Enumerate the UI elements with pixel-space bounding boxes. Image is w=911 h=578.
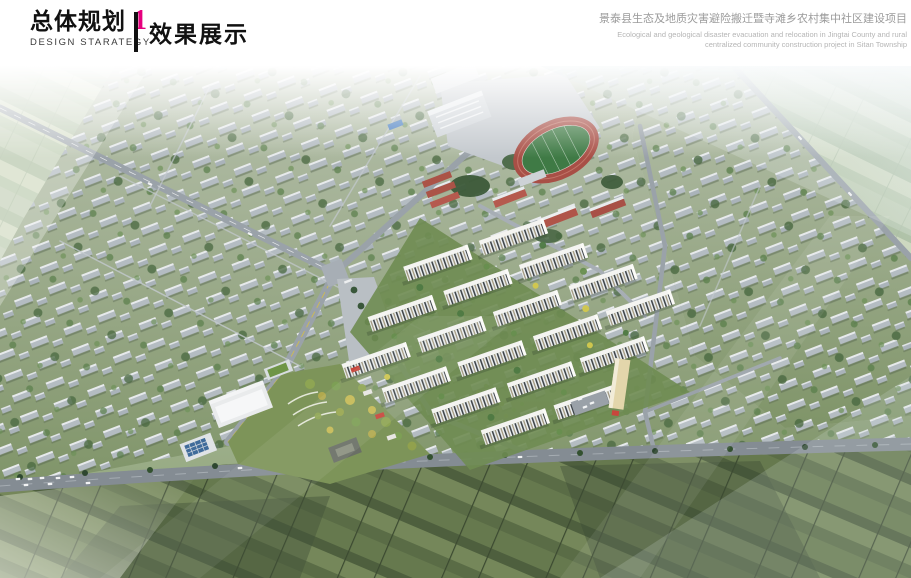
aerial-rendering <box>0 66 911 578</box>
project-title-block: 景泰县生态及地质灾害避险搬迁暨寺滩乡农村集中社区建设项目 Ecological … <box>599 10 907 49</box>
project-subtitle: Ecological and geological disaster evacu… <box>615 30 907 49</box>
presentation-slide: 总体规划 1 DESIGN STARATEGY 效果展示 景泰县生态及地质灾害避… <box>0 0 911 578</box>
section-subtitle: DESIGN STARATEGY <box>30 37 151 48</box>
slide-header: 总体规划 1 DESIGN STARATEGY 效果展示 景泰县生态及地质灾害避… <box>0 0 911 66</box>
header-divider <box>134 12 138 52</box>
page-title: 效果展示 <box>149 15 249 49</box>
section-title-block: 总体规划 1 DESIGN STARATEGY <box>30 8 151 48</box>
project-title: 景泰县生态及地质灾害避险搬迁暨寺滩乡农村集中社区建设项目 <box>599 10 907 26</box>
section-title: 总体规划 <box>30 8 126 34</box>
